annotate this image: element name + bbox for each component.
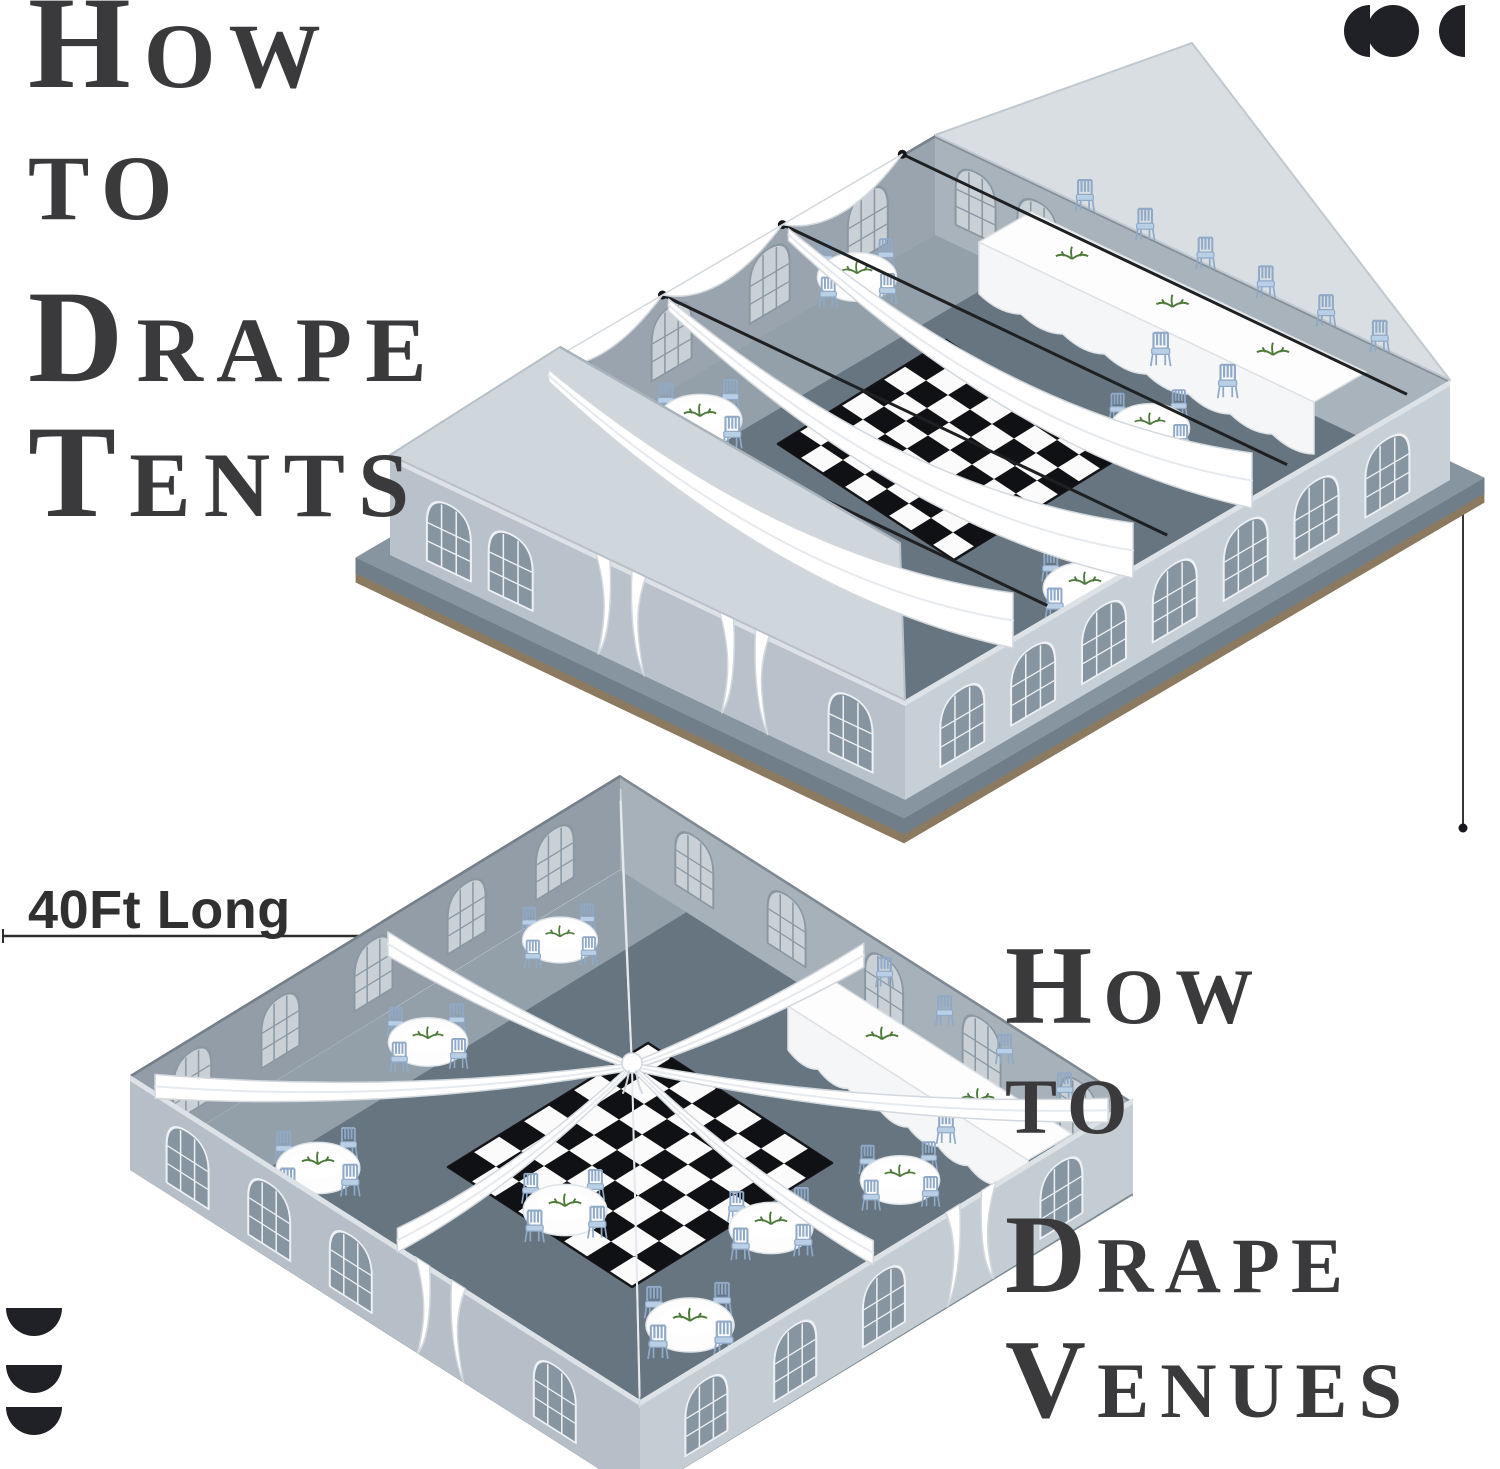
heading-tents-line1: How <box>28 0 334 109</box>
heading-tents-line4: Tents <box>28 406 422 538</box>
tent-illustration <box>350 15 1490 875</box>
stacked-half-discs-logo-icon <box>4 1304 68 1444</box>
length-label: 40Ft Long <box>28 879 291 941</box>
heading-venues-line2: to <box>1005 1040 1139 1152</box>
infographic-canvas: How to Drape Tents How to Drape Venues 4… <box>0 0 1500 1469</box>
heading-tents-line3: Drape <box>28 271 440 403</box>
brand-dots-logo-icon <box>1340 3 1500 63</box>
heading-venues-line4: Venues <box>1005 1324 1413 1436</box>
heading-venues-line1: How <box>1005 930 1264 1042</box>
heading-tents-line2: to <box>28 109 186 241</box>
heading-venues-line3: Drape <box>1005 1199 1354 1311</box>
